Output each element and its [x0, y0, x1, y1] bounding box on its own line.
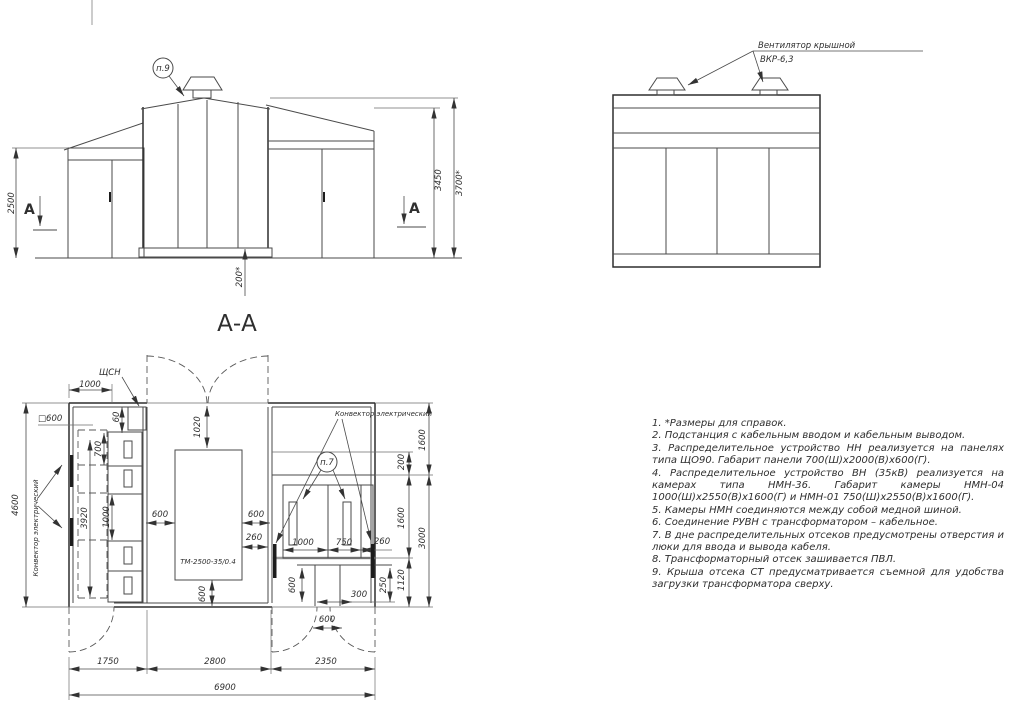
- dim-1600-top: 1600: [418, 429, 428, 451]
- dim-3700: 3700*: [455, 170, 465, 196]
- dim-260: 260: [246, 533, 262, 543]
- dim-2500: 2500: [7, 192, 17, 214]
- fan-callout-leader: [688, 51, 753, 85]
- dim-v1000: 1000: [102, 506, 112, 528]
- roof-fan-base: [193, 90, 211, 98]
- drawing-sheet: п.9 2500 А А 3450 3700* 200* А-А: [0, 0, 1024, 723]
- lv-panel-handle: [124, 470, 132, 487]
- dim-6900: 6900: [214, 683, 236, 693]
- roof-fan-icon: [752, 78, 788, 90]
- callout-p9-label: п.9: [156, 64, 170, 74]
- dim-niche-300: 300: [351, 590, 367, 600]
- dim-niche-600: 600: [288, 577, 298, 593]
- note-5: 5. Камеры НМН соединяются между собой ме…: [652, 505, 1004, 517]
- fan-callout-line2: ВКР-6,3: [760, 55, 794, 65]
- door-swing-arc: [69, 607, 114, 652]
- convector-heater: [70, 518, 74, 546]
- roof-fan-icon: [649, 78, 685, 90]
- dim-60: 60: [112, 412, 122, 423]
- schsn-label: ЩСН: [99, 368, 121, 378]
- dim-cam-260: 260: [374, 537, 390, 547]
- note-1: 1. *Размеры для справок.: [652, 418, 1004, 430]
- section-view-title: А-А: [217, 311, 257, 337]
- door-leaf: [147, 355, 268, 403]
- note-9: 9. Крыша отсека СТ предусматривается съе…: [652, 567, 1004, 592]
- dim-1600-mid: 1600: [397, 507, 407, 529]
- callout-p9-leader: [169, 76, 184, 96]
- dim-3000: 3000: [418, 527, 428, 549]
- extension-line: [22, 403, 69, 607]
- note-8: 8. Трансформаторный отсек зашивается ПВЛ…: [652, 554, 1004, 566]
- notes-block: 1. *Размеры для справок. 2. Подстанция с…: [652, 418, 1004, 592]
- note-6: 6. Соединение РУВН с трансформатором – к…: [652, 517, 1004, 529]
- rear-elevation-view: Вентилятор крышной ВКР-6,3: [613, 41, 923, 267]
- hv-niche-side: [315, 565, 340, 606]
- lv-panel-handle: [124, 441, 132, 458]
- dim-cam-750: 750: [336, 538, 352, 548]
- dim-cam-1000: 1000: [292, 538, 314, 548]
- convector-leader: [342, 419, 371, 541]
- lv-panel-handle: [124, 547, 132, 564]
- convector-label-left: Конвектор электрический: [32, 479, 40, 577]
- dim-door-600: 600: [319, 615, 335, 625]
- dim-1750: 1750: [97, 657, 119, 667]
- plan-view: ЩСН 1000 60 □600 700 3920 1000: [11, 355, 433, 700]
- dim-1120: 1120: [397, 569, 407, 591]
- door-swing-arc: [208, 356, 268, 403]
- dim-200: 200*: [235, 267, 245, 287]
- square-600-label: □600: [38, 414, 62, 424]
- dim-top-1000: 1000: [79, 380, 101, 390]
- door-swing-arc: [147, 356, 207, 403]
- roof-fan-icon: [183, 77, 222, 90]
- dim-4600: 4600: [11, 494, 21, 516]
- dim-2350: 2350: [315, 657, 337, 667]
- convector-leader: [38, 506, 62, 528]
- front-elevation-view: п.9 2500 А А 3450 3700* 200* А-А: [7, 58, 465, 337]
- convector-heater: [273, 544, 277, 578]
- drawing-canvas: п.9 2500 А А 3450 3700* 200* А-А: [0, 0, 1024, 723]
- section-marker-a-left: А: [24, 202, 35, 218]
- left-compartment-front: [68, 148, 144, 258]
- note-7: 7. В дне распределительных отсеков преду…: [652, 530, 1004, 555]
- convector-heater: [70, 455, 74, 487]
- note-4: 4. Распределительное устройство ВН (35кВ…: [652, 468, 1004, 505]
- dim-3450: 3450: [434, 169, 444, 191]
- dim-600-left: 600: [152, 510, 168, 520]
- dim-2800: 2800: [204, 657, 226, 667]
- dim-250: 250: [379, 577, 389, 593]
- dim-700: 700: [94, 441, 104, 457]
- note-3: 3. Распределительное устройство НН реали…: [652, 443, 1004, 468]
- door-swing-arc: [272, 607, 317, 652]
- lv-panel-handle: [124, 577, 132, 594]
- center-plinth: [139, 248, 272, 257]
- left-roof-slope: [64, 123, 143, 150]
- note-2: 2. Подстанция с кабельным вводом и кабел…: [652, 430, 1004, 442]
- convector-label-right: Конвектор электрический: [335, 410, 433, 418]
- schsn-leader: [122, 377, 139, 406]
- convector-leader: [276, 419, 338, 543]
- fan-callout-line1: Вентилятор крышной: [758, 41, 856, 51]
- dim-200: 200: [397, 454, 407, 470]
- dim-600-right: 600: [248, 510, 264, 520]
- dim-3920: 3920: [80, 507, 90, 529]
- convector-heater: [371, 544, 375, 578]
- door-leaf: [272, 607, 375, 652]
- section-marker-a-right: А: [409, 201, 420, 217]
- dim-1020: 1020: [193, 416, 203, 438]
- right-roof-slope: [266, 105, 374, 131]
- transformer-label: ТМ-2500-35/0.4: [180, 558, 236, 566]
- callout-p7-label: п.7: [320, 458, 334, 468]
- convector-leader: [38, 465, 62, 498]
- door-swing-arc: [330, 607, 375, 652]
- dim-600-bottom: 600: [198, 586, 208, 602]
- center-roof: [141, 98, 270, 109]
